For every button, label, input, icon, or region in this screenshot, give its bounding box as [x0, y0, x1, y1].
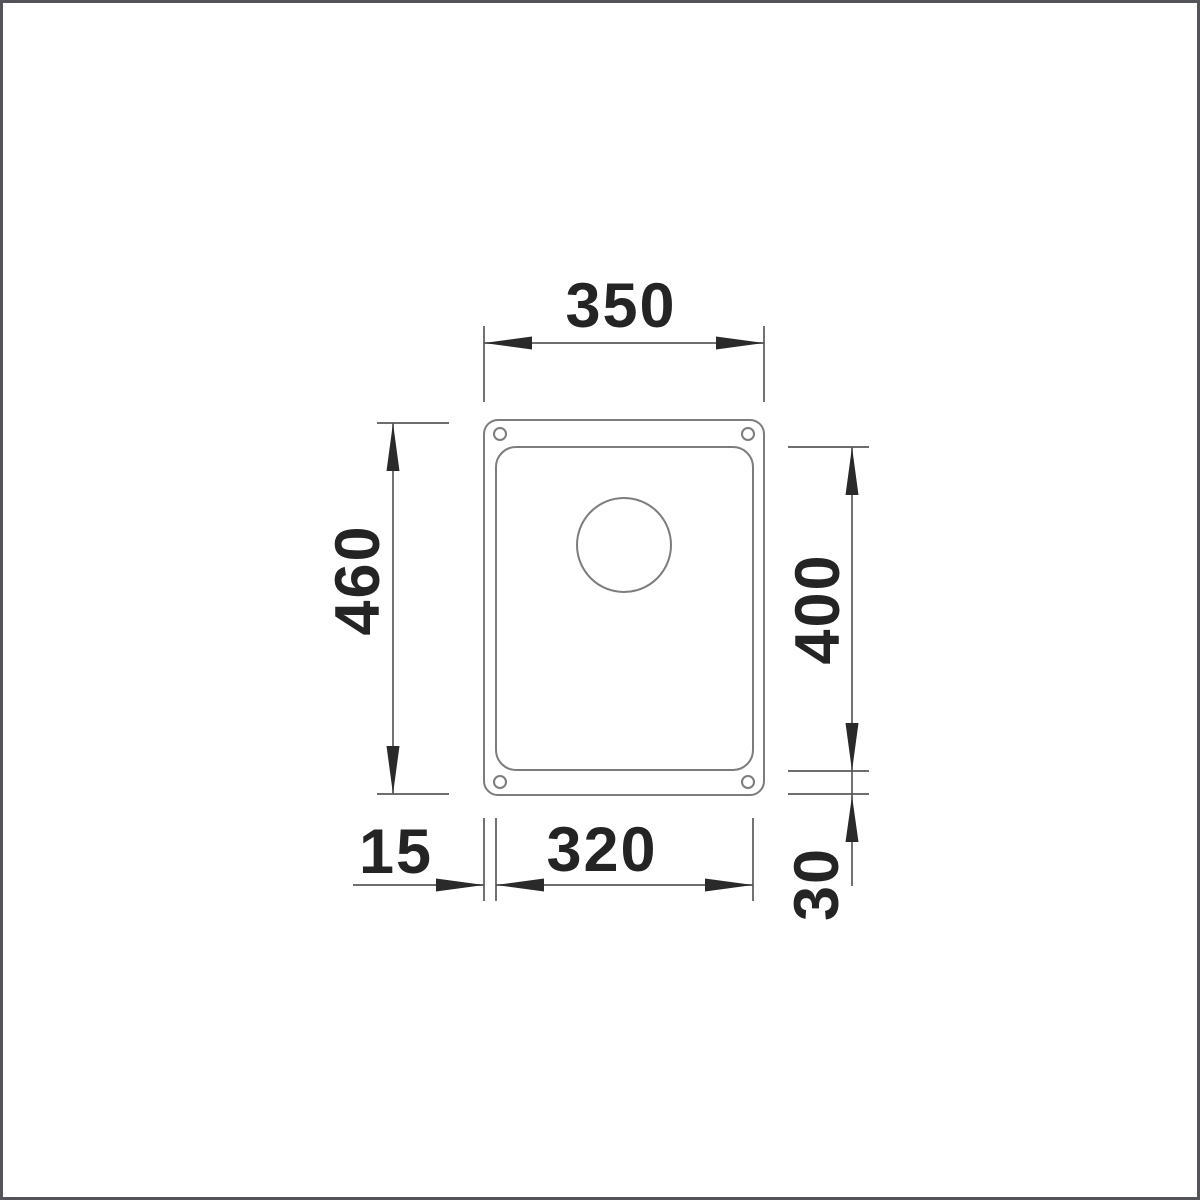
arrowhead-right-icon	[705, 879, 753, 892]
sink-outer-outline	[484, 420, 764, 795]
dimension-label-overall-width: 350	[565, 271, 676, 341]
dimension-overall-height: 460	[323, 423, 449, 794]
arrowhead-left-icon	[496, 879, 544, 892]
arrowhead-right-icon	[716, 337, 764, 350]
dimension-label-rim-bottom: 30	[782, 847, 852, 921]
mounting-hole-top-right	[742, 428, 754, 440]
arrowhead-up-icon	[846, 796, 859, 842]
arrowhead-up-icon	[846, 447, 859, 495]
arrowhead-down-icon	[846, 723, 859, 771]
dimension-bowl-width: 320	[484, 815, 753, 901]
mounting-hole-top-left	[494, 428, 506, 440]
dimension-label-bowl-width: 320	[546, 815, 657, 885]
dimension-label-rim-left: 15	[359, 817, 433, 887]
arrowhead-right-icon	[436, 879, 484, 892]
sink-bowl-outline	[496, 447, 753, 770]
dimension-rim-bottom: 30	[782, 771, 869, 921]
technical-drawing-page: 350 460 400 30	[0, 0, 1200, 1200]
dimension-rim-left: 15	[353, 817, 484, 892]
arrowhead-up-icon	[387, 423, 400, 471]
arrowhead-down-icon	[387, 746, 400, 794]
sink-dimension-drawing: 350 460 400 30	[0, 0, 1200, 1200]
sink-top-view	[484, 420, 764, 795]
dimension-bowl-height: 400	[783, 447, 869, 771]
mounting-hole-bottom-right	[742, 776, 754, 788]
drain-hole	[577, 498, 671, 592]
dimension-label-bowl-height: 400	[783, 553, 853, 664]
arrowhead-left-icon	[484, 337, 532, 350]
dimension-overall-width: 350	[484, 271, 764, 402]
dimension-label-overall-height: 460	[323, 524, 393, 635]
mounting-hole-bottom-left	[494, 776, 506, 788]
